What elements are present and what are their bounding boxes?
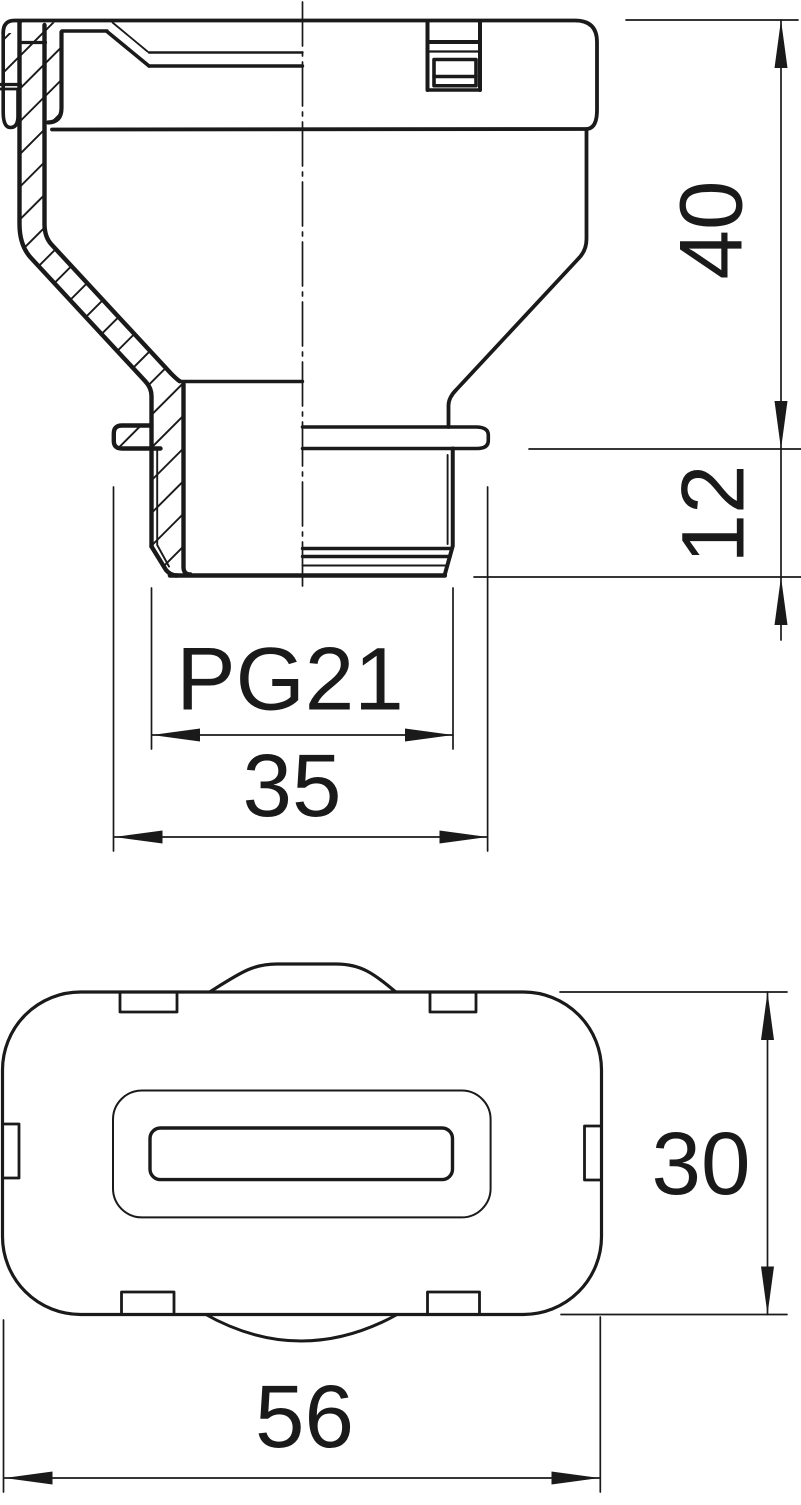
svg-text:40: 40 [660, 181, 760, 280]
svg-text:12: 12 [663, 465, 763, 564]
svg-text:PG21: PG21 [176, 629, 404, 729]
svg-text:30: 30 [652, 1113, 751, 1213]
svg-text:35: 35 [243, 735, 342, 835]
svg-text:56: 56 [255, 1366, 354, 1466]
